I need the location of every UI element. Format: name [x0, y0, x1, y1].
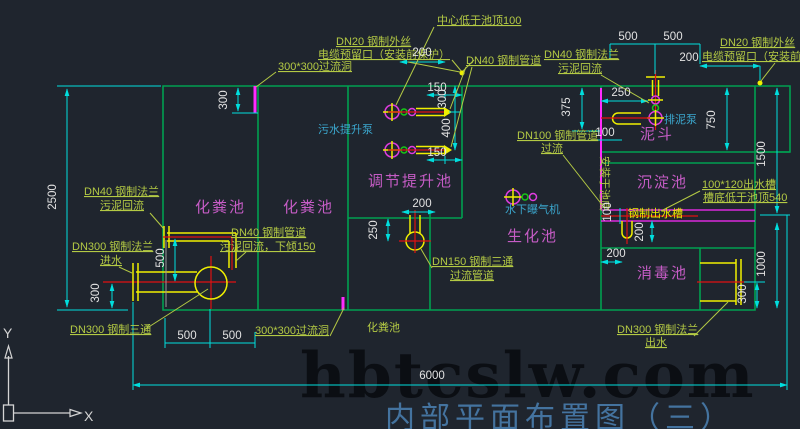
dim-100-text: 100 [595, 127, 614, 139]
cable-port-dot-right [758, 81, 763, 86]
dn100-pipe [601, 113, 650, 124]
label-disinfect: 消毒池 [637, 265, 688, 282]
cad-canvas: hbtcslw.com [0, 0, 800, 429]
leader-hole-top [256, 72, 276, 87]
aerator-fitting-green [522, 194, 528, 200]
note-dn40-flange-mid-2: 污泥回流 [558, 61, 602, 75]
note-hole-bottom: 300*300过流洞 [255, 323, 329, 337]
note-dn300-outlet-1: DN300 钢制法兰 [617, 322, 698, 336]
dim-2500-text: 2500 [47, 184, 59, 210]
dim-200-tee-text: 200 [412, 198, 431, 210]
ucs-x-arrowhead [70, 410, 81, 417]
dim-200-top-text: 200 [412, 47, 431, 59]
label-mud-pump: 排泥泵 [664, 112, 697, 126]
dn150-tee-assembly [399, 210, 431, 253]
leader-dn100 [563, 155, 603, 206]
dim-500-bl-b-text: 500 [222, 330, 241, 342]
leader-cable-left [408, 62, 460, 72]
note-dn100-1: DN100 钢制管道 [517, 128, 598, 142]
note-dn40-pipe: DN40 钢制管道 [466, 53, 541, 67]
label-aerator: 水下曝气机 [505, 202, 560, 216]
note-dn40-return-1: DN40 钢制管道 [231, 225, 306, 239]
cad-viewport: hbtcslw.com [0, 0, 800, 429]
note-dn300-inlet-2: 进水 [100, 254, 122, 267]
dim-150-b-text: 150 [427, 147, 446, 159]
note-dn40-flange-left-1: DN40 钢制法兰 [84, 184, 159, 198]
note-dn40-flange-left-2: 污泥回流 [100, 198, 144, 212]
note-cable-right-1: DN20 钢制外丝 [720, 36, 795, 49]
dim-1500-text: 1500 [756, 141, 768, 167]
leader-dn40-flange-left [150, 213, 164, 229]
note-channel-1: 100*120出水槽 [702, 177, 776, 191]
label-sewage-pump: 污水提升泵 [318, 123, 373, 136]
note-dn300-outlet-2: 出水 [645, 335, 667, 349]
label-septic-c: 化粪池 [367, 320, 400, 334]
dim-250-r-text: 250 [611, 87, 630, 99]
dim-300-outlet-text: 300 [737, 284, 749, 303]
note-center-low: 中心低于池顶100 [437, 14, 521, 27]
dim-500-tr-a-text: 500 [618, 31, 637, 43]
label-septic-b: 化粪池 [283, 199, 334, 216]
watermark-text: hbtcslw.com [300, 338, 756, 412]
note-hole-top: 300*300过流洞 [278, 59, 352, 73]
dim-250-tee-text: 250 [368, 220, 380, 239]
dim-500-inlet-text: 500 [155, 248, 167, 267]
note-cable-right-2: 电缆预留口（安装前保护） [702, 49, 800, 63]
leader-dn300-outlet [694, 302, 728, 336]
aerator-fitting-magenta [530, 194, 537, 201]
leader-dn40-pipe-a [450, 67, 466, 109]
inlet-assembly [103, 256, 236, 309]
ucs-origin-box [4, 405, 14, 421]
mud-pump-assembly [646, 70, 665, 130]
callout-v-a [452, 60, 462, 72]
dim-500-tr-b-text: 500 [663, 31, 682, 43]
label-bio: 生化池 [507, 228, 558, 245]
dim-300-a-text: 300 [437, 89, 449, 108]
dim-1000-text: 1000 [756, 251, 768, 277]
note-dn300-tee: DN300 钢制三通 [70, 323, 151, 336]
dim-200-disinfect-text: 200 [606, 248, 625, 260]
note-dn150-2: 过流管道 [450, 268, 494, 282]
leader-dn300-inlet [119, 267, 132, 273]
dim-300-inlet-text: 300 [90, 283, 102, 302]
note-dn100-2: 过流 [541, 141, 563, 155]
dim-200-tr-text: 200 [679, 52, 698, 64]
dim-750-text: 750 [706, 110, 718, 129]
leader-cable-right [761, 63, 775, 81]
dim-100-c-text: 100 [602, 202, 614, 221]
ucs-x-label: X [84, 408, 94, 424]
note-channel-2: 槽底低于池顶540 [703, 190, 787, 204]
label-septic-a: 化粪池 [195, 199, 246, 216]
label-hopper: 泥斗 [640, 126, 674, 143]
label-regulating: 调节提升池 [368, 173, 453, 190]
dim-400-text: 400 [441, 118, 453, 137]
ucs-y-label: Y [3, 325, 13, 341]
note-dn40-flange-mid-1: DN40 钢制法兰 [544, 47, 619, 61]
note-cable-left-1: DN20 钢制外丝 [336, 35, 411, 48]
dim-500-bl-a-text: 500 [177, 330, 196, 342]
note-dn300-inlet-1: DN300 钢制法兰 [72, 239, 153, 253]
dim-300-topleft-text: 300 [218, 90, 230, 109]
label-sedimentation: 沉淀池 [637, 174, 688, 191]
leader-hole-bottom [330, 308, 344, 336]
note-dn40-return-2: 污泥回流，下倾150 [220, 239, 315, 253]
label-steel-channel: 钢制出水槽 [628, 206, 683, 220]
dim-375-text: 375 [561, 97, 573, 116]
dim-6000-text: 6000 [419, 370, 445, 382]
dim-200-v-text: 200 [634, 222, 646, 241]
note-dn150-1: DN150 钢制三通 [432, 255, 513, 268]
ucs-icon: Y X [3, 325, 94, 424]
drawing-title: 内部平面布置图（三） [385, 402, 735, 429]
leader-dn40-return [236, 252, 246, 261]
